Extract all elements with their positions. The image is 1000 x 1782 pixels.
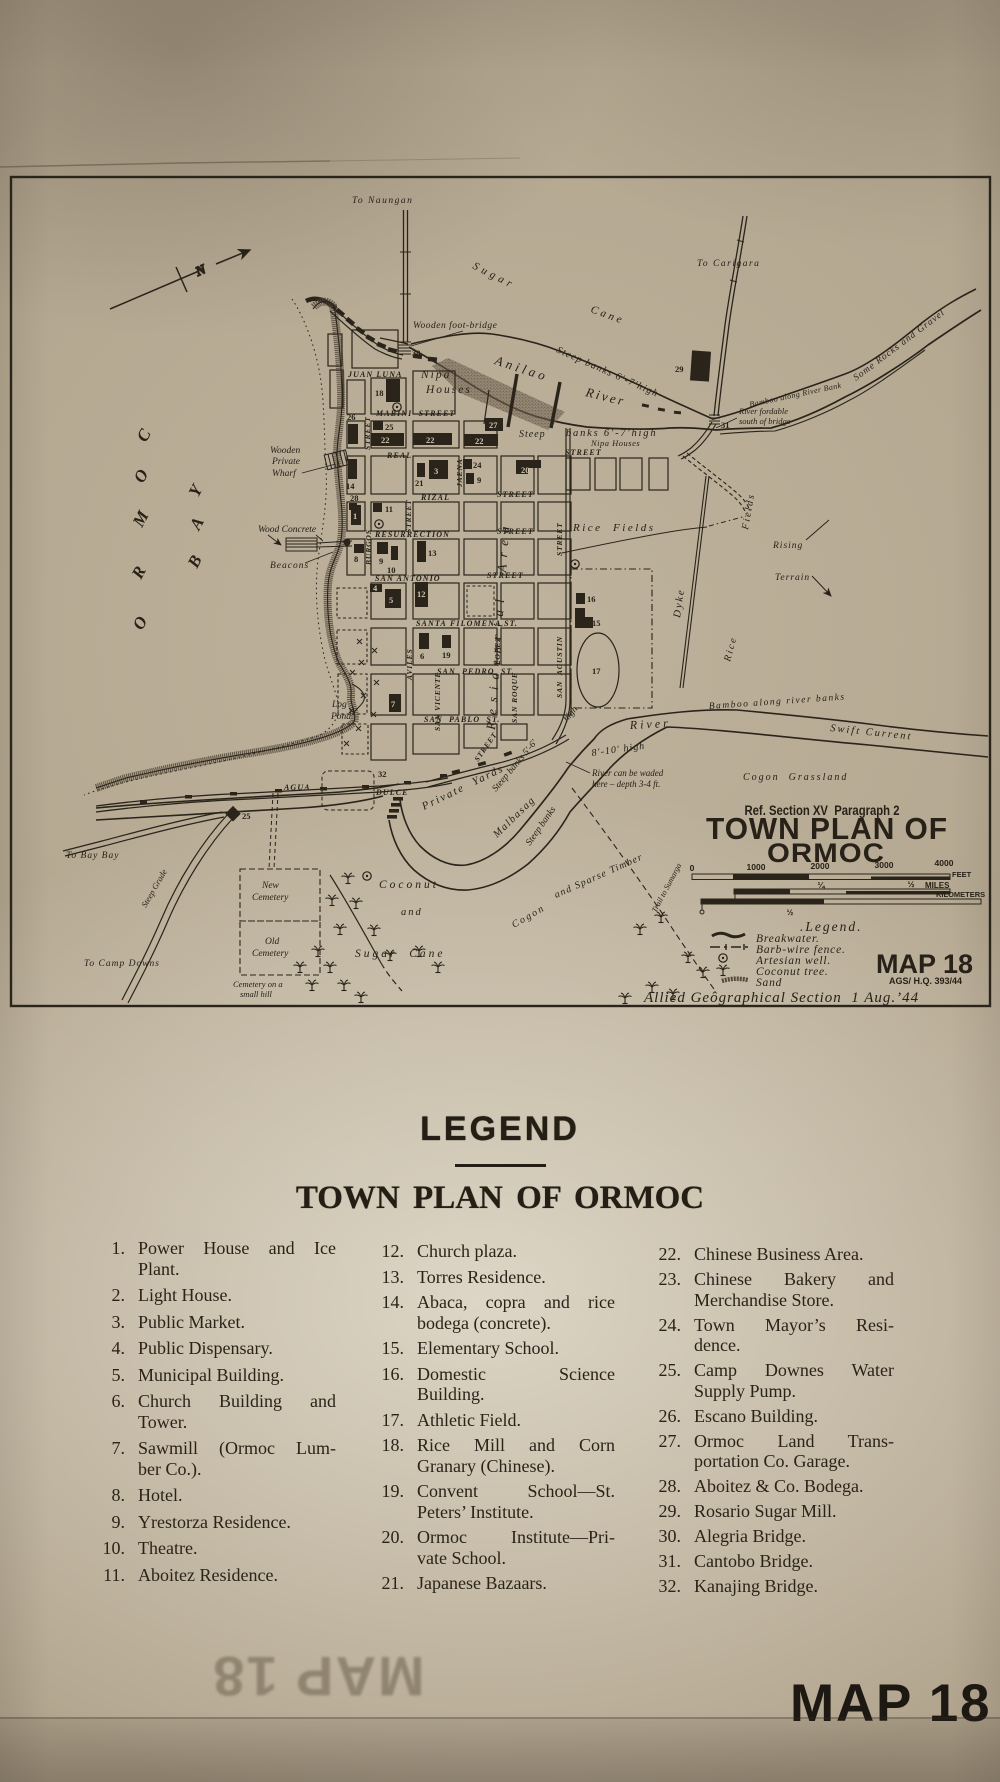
svg-text:Trail to Sumarga: Trail to Sumarga <box>650 862 683 914</box>
svg-text:Wharf: Wharf <box>272 468 297 479</box>
svg-text:Bamboo along River Bank: Bamboo along River Bank <box>749 381 843 409</box>
svg-text:Terrain: Terrain <box>775 573 810 583</box>
svg-text:MABINI STREET: MABINI STREET <box>375 409 455 418</box>
svg-text:Cogon: Cogon <box>510 903 547 931</box>
svg-text:STREET: STREET <box>404 499 413 533</box>
svg-text:here – depth 3-4 ft.: here – depth 3-4 ft. <box>592 779 660 789</box>
svg-text:SAN AGUSTIN: SAN AGUSTIN <box>555 636 564 698</box>
svg-text:¼: ¼ <box>817 880 825 890</box>
svg-text:5: 5 <box>389 595 393 605</box>
svg-text:Dyke: Dyke <box>672 588 687 620</box>
svg-text:1000: 1000 <box>747 862 766 872</box>
svg-text:Cemetery: Cemetery <box>252 949 289 959</box>
svg-text:STREET: STREET <box>555 522 564 556</box>
svg-text:AVILES: AVILES <box>405 648 414 681</box>
svg-text:Private: Private <box>271 457 300 467</box>
svg-text:27: 27 <box>489 420 498 430</box>
svg-text:Allied Geôgraphical Section 1: Allied Geôgraphical Section 1 Aug.’44 <box>643 990 919 1006</box>
svg-text:31: 31 <box>721 420 730 430</box>
svg-text:To Camp Downs: To Camp Downs <box>84 959 160 969</box>
svg-text:Some Rocks and Gravel: Some Rocks and Gravel <box>852 308 947 383</box>
svg-text:A: A <box>185 514 208 534</box>
svg-text:28: 28 <box>350 493 359 503</box>
svg-text:DULCE: DULCE <box>375 788 409 797</box>
svg-text:FEET: FEET <box>952 870 972 879</box>
svg-text:Pond: Pond <box>330 712 351 722</box>
svg-text:21: 21 <box>415 478 424 488</box>
svg-text:Rising: Rising <box>772 541 803 551</box>
svg-text:River can be waded: River can be waded <box>591 768 664 778</box>
svg-text:Wooden foot-bridge: Wooden foot-bridge <box>413 320 497 331</box>
svg-text:13: 13 <box>428 548 437 558</box>
svg-text:Wooden: Wooden <box>270 446 301 456</box>
svg-text:SAN VICENTE: SAN VICENTE <box>433 672 442 731</box>
svg-text:Coconut: Coconut <box>379 879 439 891</box>
svg-text:3: 3 <box>434 466 438 476</box>
svg-text:O: O <box>130 466 153 486</box>
svg-text:C: C <box>133 425 155 445</box>
svg-text:AGUA: AGUA <box>283 783 311 792</box>
svg-text:14: 14 <box>346 481 355 491</box>
svg-text:4000: 4000 <box>935 858 954 868</box>
svg-text:Bamboo along river banks: Bamboo along river banks <box>709 692 846 712</box>
svg-text:and Sparse Timber: and Sparse Timber <box>553 852 645 901</box>
svg-text:.Legend.: .Legend. <box>800 919 863 934</box>
svg-text:½: ½ <box>787 908 794 917</box>
svg-text:R: R <box>127 563 150 583</box>
svg-text:Steep Grade: Steep Grade <box>139 867 169 909</box>
svg-text:25: 25 <box>242 811 251 821</box>
svg-text:25: 25 <box>385 422 394 432</box>
svg-text:9: 9 <box>477 475 481 485</box>
svg-text:JUAN LUNA: JUAN LUNA <box>347 370 403 379</box>
svg-text:11: 11 <box>385 504 393 514</box>
svg-text:AGS/ H.Q. 393/44: AGS/ H.Q. 393/44 <box>889 976 962 986</box>
svg-text:To Carigara: To Carigara <box>697 259 760 269</box>
svg-text:SAN ROQUE: SAN ROQUE <box>510 672 519 723</box>
svg-text:JAENA: JAENA <box>455 458 464 488</box>
svg-text:REAL: REAL <box>386 451 412 460</box>
svg-text:12: 12 <box>417 589 426 599</box>
svg-text:1: 1 <box>353 511 357 521</box>
svg-text:0: 0 <box>690 863 695 873</box>
svg-text:and: and <box>401 907 423 918</box>
svg-text:22: 22 <box>381 435 390 445</box>
svg-text:Wood Concrete: Wood Concrete <box>258 525 316 535</box>
svg-text:Steep banks: Steep banks <box>524 805 558 848</box>
svg-text:Anilao: Anilao <box>492 352 551 384</box>
svg-text:To Bay Bay: To Bay Bay <box>66 851 119 861</box>
svg-text:River: River <box>628 716 671 732</box>
svg-text:Cogon Grassland: Cogon Grassland <box>743 772 848 783</box>
svg-text:STREET: STREET <box>497 490 534 499</box>
svg-text:22: 22 <box>475 436 484 446</box>
svg-text:River: River <box>583 384 627 409</box>
svg-text:15: 15 <box>592 618 601 628</box>
svg-text:6: 6 <box>420 651 424 661</box>
svg-text:Cane: Cane <box>589 304 626 327</box>
svg-text:Steep: Steep <box>519 429 546 440</box>
svg-text:8′-10′ high: 8′-10′ high <box>591 741 646 759</box>
svg-text:SAN ANTONIO: SAN ANTONIO <box>375 574 441 583</box>
svg-text:Fields: Fields <box>740 492 757 531</box>
svg-text:10: 10 <box>387 565 396 575</box>
svg-text:MILES: MILES <box>925 881 950 890</box>
svg-text:Rice Fields: Rice Fields <box>572 522 656 534</box>
svg-text:RIZAL: RIZAL <box>420 493 450 502</box>
svg-text:32: 32 <box>378 769 387 779</box>
svg-text:Cemetery on a: Cemetery on a <box>233 979 283 989</box>
svg-text:To Naungan: To Naungan <box>352 196 413 206</box>
svg-text:Old: Old <box>265 937 280 947</box>
svg-text:29: 29 <box>675 364 684 374</box>
svg-text:MAP 18: MAP 18 <box>876 949 973 979</box>
svg-text:2000: 2000 <box>811 861 830 871</box>
svg-text:New: New <box>261 881 280 891</box>
svg-text:Swift Current: Swift Current <box>830 723 913 743</box>
svg-text:8: 8 <box>354 554 358 564</box>
svg-text:Houses: Houses <box>425 384 472 396</box>
svg-text:high: high <box>562 704 581 724</box>
svg-text:26: 26 <box>347 412 356 422</box>
svg-text:Sand: Sand <box>756 977 782 989</box>
svg-text:STREET: STREET <box>363 416 372 450</box>
svg-text:STREET: STREET <box>472 730 499 763</box>
svg-text:20: 20 <box>521 465 530 475</box>
svg-text:O: O <box>129 613 152 633</box>
svg-text:3000: 3000 <box>875 860 894 870</box>
svg-text:Nipa Houses: Nipa Houses <box>590 438 640 448</box>
svg-text:STREET: STREET <box>565 448 602 457</box>
svg-text:N: N <box>192 261 208 279</box>
svg-text:17: 17 <box>592 666 601 676</box>
svg-text:24: 24 <box>473 460 482 470</box>
svg-text:16: 16 <box>587 594 596 604</box>
svg-text:½: ½ <box>907 879 914 889</box>
svg-text:B: B <box>183 552 206 572</box>
svg-text:18: 18 <box>375 388 384 398</box>
svg-text:22: 22 <box>426 435 435 445</box>
svg-text:Log: Log <box>331 700 347 710</box>
svg-text:M: M <box>128 507 153 531</box>
svg-text:Sugar: Sugar <box>471 260 518 292</box>
svg-text:small hill: small hill <box>240 989 273 999</box>
svg-text:River fordable: River fordable <box>738 406 788 416</box>
svg-text:9: 9 <box>379 556 383 566</box>
svg-text:Cemetery: Cemetery <box>252 893 289 903</box>
svg-text:Sugar Cane: Sugar Cane <box>355 948 446 960</box>
svg-text:south of bridge: south of bridge <box>739 416 791 426</box>
svg-text:19: 19 <box>442 650 451 660</box>
svg-text:Beacons: Beacons <box>270 561 309 571</box>
svg-text:KILOMETERS: KILOMETERS <box>936 890 985 899</box>
svg-text:SAN PEDRO ST.: SAN PEDRO ST. <box>437 667 515 676</box>
svg-text:Rice: Rice <box>722 635 740 664</box>
svg-text:Y: Y <box>185 480 207 500</box>
svg-text:BURGOS: BURGOS <box>364 529 373 566</box>
